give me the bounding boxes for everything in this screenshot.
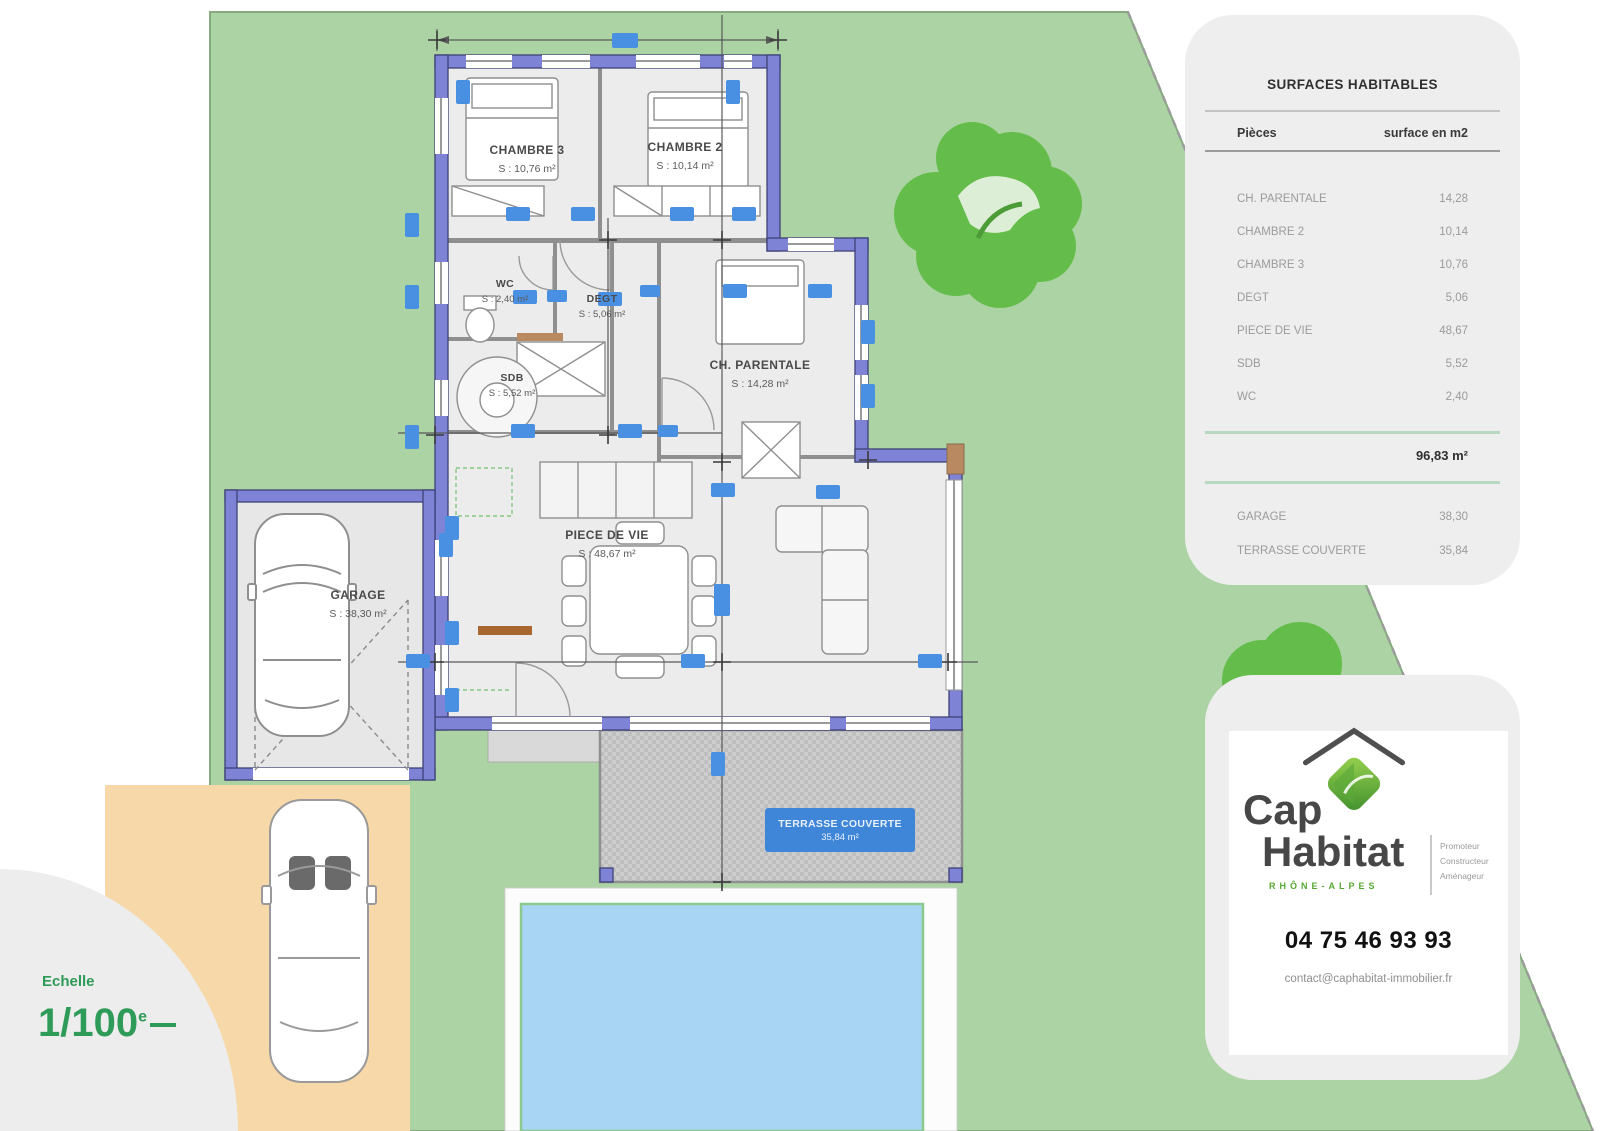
dimension-marker (918, 654, 942, 668)
surfaces-col-area: surface en m2 (1384, 126, 1468, 140)
dimension-marker (406, 654, 430, 668)
surface-row: CH. PARENTALE14,28 (1237, 182, 1468, 215)
dimension-marker (816, 485, 840, 499)
brand-panel: Cap Habitat RHÔNE-ALPES PromoteurConstru… (1229, 731, 1508, 1055)
room-label-degt: DEGTS : 5,06 m² (579, 293, 625, 320)
dimension-marker (618, 424, 642, 438)
divider (1205, 150, 1500, 152)
scale-suffix: e (138, 1009, 147, 1026)
dimension-marker (681, 654, 705, 668)
surfaces-card: SURFACES HABITABLES Pièces surface en m2… (1185, 15, 1520, 585)
brand-name-bottom: Habitat (1262, 831, 1404, 873)
dimension-marker (861, 320, 875, 344)
terrace-label-line1: TERRASSE COUVERTE (778, 818, 902, 830)
dimension-marker (670, 207, 694, 221)
dimension-marker (506, 207, 530, 221)
surface-row: CHAMBRE 210,14 (1237, 215, 1468, 248)
brand-card: Cap Habitat RHÔNE-ALPES PromoteurConstru… (1205, 675, 1520, 1080)
dimension-marker (658, 425, 678, 437)
dimension-marker (456, 80, 470, 104)
divider-green (1205, 431, 1500, 434)
surface-row: GARAGE38,30 (1237, 500, 1468, 534)
surface-row: PIECE DE VIE48,67 (1237, 314, 1468, 347)
dimension-marker (808, 284, 832, 298)
terrace-label-line2: 35,84 m² (821, 832, 859, 843)
dimension-marker (445, 621, 459, 645)
surface-row: WC2,40 (1237, 380, 1468, 413)
brand-taglines: PromoteurConstructeurAménageur (1440, 839, 1489, 884)
brand-name-top: Cap (1243, 789, 1322, 831)
swimming-pool (521, 904, 923, 1131)
dimension-marker (723, 284, 747, 298)
dimension-marker (439, 533, 453, 557)
terrace-area-label: TERRASSE COUVERTE 35,84 m² (765, 808, 915, 852)
divider-green (1205, 481, 1500, 484)
scale-value: 1/100e (38, 1001, 176, 1046)
scale-dash (150, 1023, 176, 1027)
scale-label: Echelle (42, 973, 95, 990)
surfaces-rows: CH. PARENTALE14,28CHAMBRE 210,14CHAMBRE … (1237, 182, 1468, 413)
room-label-chambre2: CHAMBRE 2S : 10,14 m² (648, 140, 723, 172)
dimension-marker (732, 207, 756, 221)
brand-tagline: Promoteur (1440, 839, 1489, 854)
dimension-marker (612, 33, 638, 48)
dimension-marker (405, 285, 419, 309)
dimension-marker (711, 483, 735, 497)
floor-plan-canvas: CHAMBRE 3S : 10,76 m²CHAMBRE 2S : 10,14 … (0, 0, 1600, 1131)
dimension-marker (640, 285, 660, 297)
dimension-marker (405, 213, 419, 237)
garage-car (248, 514, 356, 736)
surface-row: TERRASSE COUVERTE35,84 (1237, 534, 1468, 568)
surfaces-total: 96,83 m² (1237, 448, 1468, 463)
scale-ratio: 1/100 (38, 1001, 138, 1045)
dimension-marker (714, 584, 730, 616)
dimension-marker (547, 290, 567, 302)
brand-email: contact@caphabitat-immobilier.fr (1229, 973, 1508, 985)
divider (1430, 835, 1432, 895)
dining-table (590, 546, 688, 654)
brand-region: RHÔNE-ALPES (1269, 881, 1379, 891)
room-label-wc: WCS : 2,40 m² (482, 278, 528, 305)
bench (478, 626, 532, 635)
surface-row: CHAMBRE 310,76 (1237, 248, 1468, 281)
brand-tagline: Constructeur (1440, 854, 1489, 869)
surfaces-title: SURFACES HABITABLES (1205, 77, 1500, 92)
room-label-garage: GARAGES : 38,30 m² (329, 588, 386, 620)
dimension-marker (711, 752, 725, 776)
dimension-marker (511, 424, 535, 438)
surfaces-col-rooms: Pièces (1237, 126, 1277, 140)
entry-walkway (488, 730, 600, 762)
brand-tagline: Aménageur (1440, 869, 1489, 884)
room-label-sdb: SDBS : 5,52 m² (489, 372, 535, 399)
brand-phone: 04 75 46 93 93 (1229, 927, 1508, 955)
dimension-marker (571, 207, 595, 221)
room-label-piece_de_vie: PIECE DE VIES : 48,67 m² (565, 528, 649, 560)
divider (1205, 110, 1500, 112)
dimension-marker (726, 80, 740, 104)
dimension-marker (445, 688, 459, 712)
door (947, 444, 964, 474)
dimension-marker (405, 425, 419, 449)
room-label-chambre3: CHAMBRE 3S : 10,76 m² (490, 143, 565, 175)
door (517, 333, 563, 341)
surface-row: SDB5,52 (1237, 347, 1468, 380)
covered-terrace (600, 730, 962, 882)
surface-row: DEGT5,06 (1237, 281, 1468, 314)
driveway-car (262, 800, 376, 1082)
surfaces-annex-rows: GARAGE38,30TERRASSE COUVERTE35,84 (1237, 500, 1468, 568)
room-label-parentale: CH. PARENTALES : 14,28 m² (710, 358, 811, 390)
dimension-marker (861, 384, 875, 408)
